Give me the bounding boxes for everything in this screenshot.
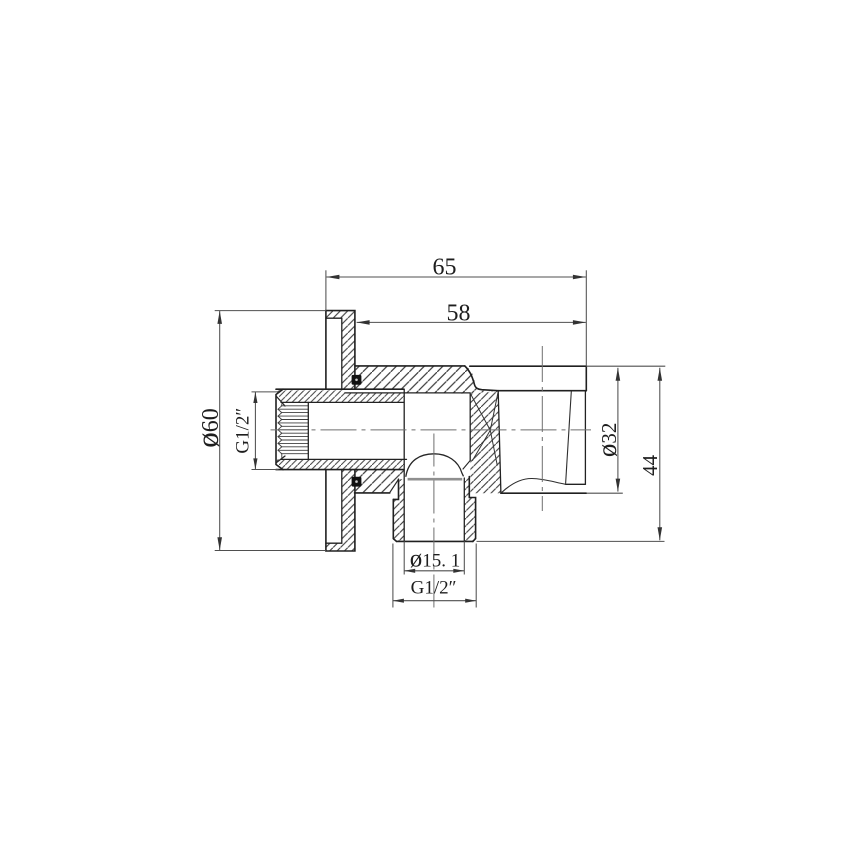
svg-text:ø32: ø32 bbox=[592, 423, 622, 458]
svg-text:G1/2″: G1/2″ bbox=[232, 408, 253, 454]
svg-text:65: 65 bbox=[433, 255, 457, 281]
svg-text:44: 44 bbox=[638, 454, 662, 476]
svg-text:ø15. 1: ø15. 1 bbox=[410, 546, 461, 573]
svg-text:G1/2″: G1/2″ bbox=[411, 578, 457, 599]
svg-text:58: 58 bbox=[447, 301, 471, 327]
